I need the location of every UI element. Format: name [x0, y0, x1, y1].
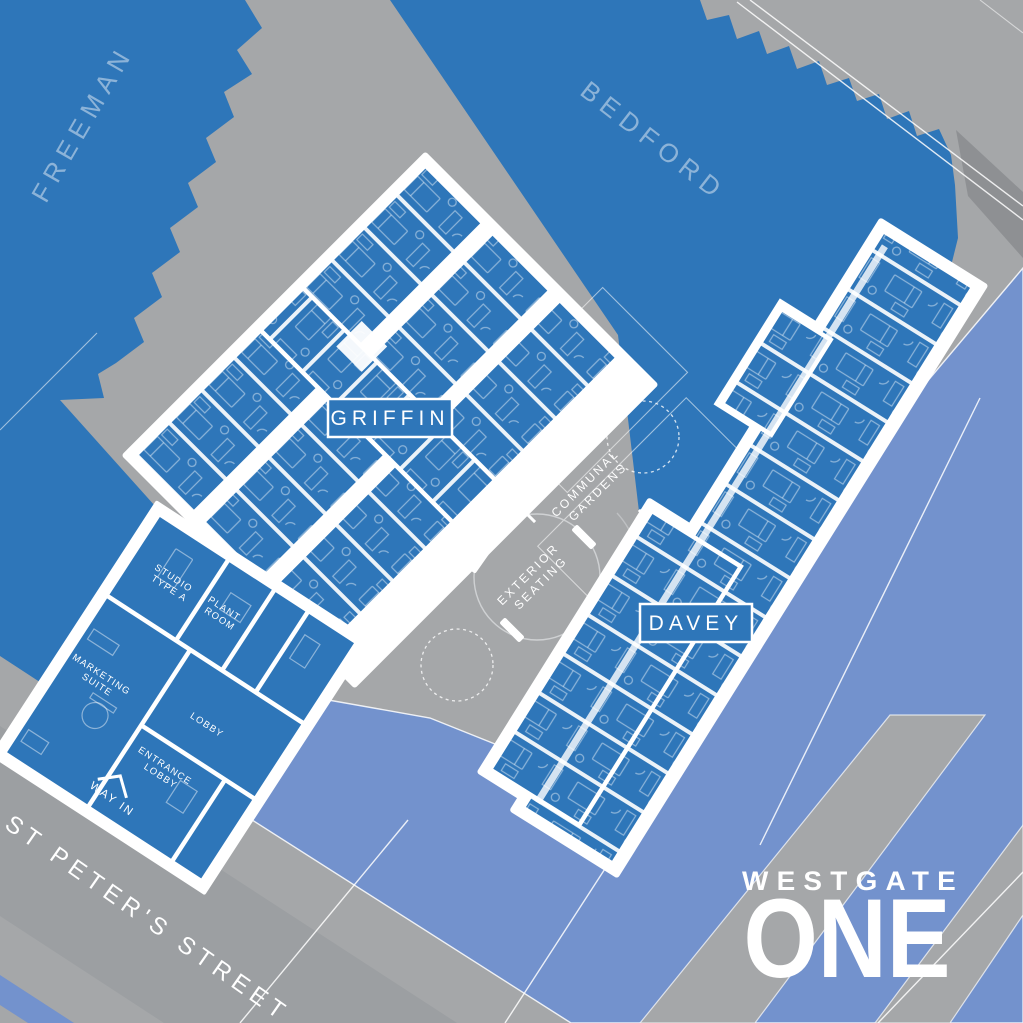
site-plan-canvas: STUDIO TYPE A PLANT ROOM MARKETING SUITE… [0, 0, 1023, 1023]
logo-line2: ONE [744, 876, 951, 1001]
davey-label: DAVEY [640, 604, 752, 642]
westgate-one-logo: WESTGATE ONE [742, 866, 964, 1001]
site-plan: STUDIO TYPE A PLANT ROOM MARKETING SUITE… [0, 0, 1023, 1023]
davey-label-text: DAVEY [649, 612, 744, 635]
griffin-label: GRIFFIN [328, 399, 452, 437]
griffin-label-text: GRIFFIN [331, 407, 450, 430]
